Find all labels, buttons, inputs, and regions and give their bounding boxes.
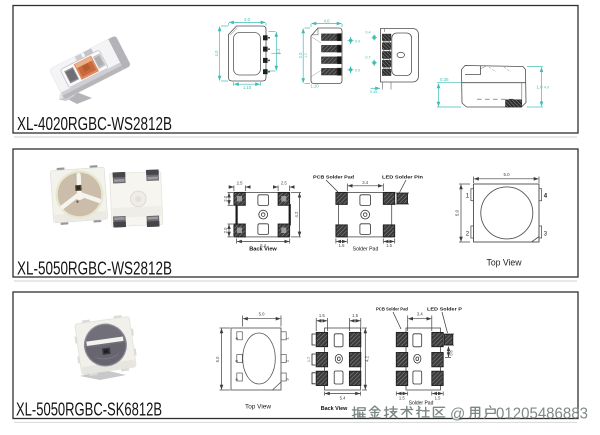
- svg-text:0.9: 0.9: [355, 39, 360, 43]
- svg-text:1.5: 1.5: [352, 313, 358, 318]
- svg-text:3.4: 3.4: [362, 180, 368, 185]
- svg-text:1.6: 1.6: [537, 85, 544, 90]
- svg-text:5.0: 5.0: [454, 209, 459, 216]
- svg-text:2.0: 2.0: [298, 52, 303, 58]
- svg-text:XL-5050RGBC-WS2812B: XL-5050RGBC-WS2812B: [17, 258, 172, 278]
- svg-text:1.5: 1.5: [319, 313, 325, 318]
- svg-text:1.5: 1.5: [339, 243, 345, 248]
- svg-text:5.0: 5.0: [215, 356, 220, 362]
- svg-text:4.0: 4.0: [324, 18, 330, 23]
- svg-text:PCB Solder Pad: PCB Solder Pad: [313, 175, 354, 181]
- svg-text:4.0: 4.0: [214, 50, 219, 56]
- svg-text:1.10: 1.10: [243, 85, 252, 90]
- svg-text:Back View: Back View: [249, 246, 277, 252]
- svg-text:0.9: 0.9: [355, 69, 360, 73]
- svg-text:2.0: 2.0: [223, 195, 228, 201]
- svg-text:4.2: 4.2: [364, 355, 369, 361]
- svg-text:3.4: 3.4: [417, 311, 423, 316]
- svg-text:Solder Pad: Solder Pad: [353, 246, 379, 252]
- svg-text:Top View: Top View: [245, 405, 272, 411]
- svg-text:4.0: 4.0: [544, 86, 549, 90]
- svg-text:3.2: 3.2: [276, 48, 281, 54]
- svg-text:4.2: 4.2: [294, 211, 299, 217]
- svg-text:1.7: 1.7: [307, 357, 311, 362]
- svg-text:LED Solder P: LED Solder P: [427, 307, 462, 312]
- svg-text:5.4: 5.4: [340, 396, 346, 401]
- svg-text:0.6: 0.6: [449, 350, 453, 355]
- svg-text:2.0: 2.0: [244, 17, 250, 22]
- svg-text:Back View: Back View: [321, 406, 348, 412]
- svg-text:5.0: 5.0: [503, 172, 510, 177]
- svg-text:0.45: 0.45: [370, 90, 377, 94]
- svg-text:XL-5050RGBC-SK6812B: XL-5050RGBC-SK6812B: [16, 400, 162, 420]
- svg-text:1.5: 1.5: [386, 243, 392, 248]
- svg-text:2.5: 2.5: [237, 181, 243, 186]
- svg-text:2.5: 2.5: [281, 181, 287, 186]
- svg-text:PCB Solder Pad: PCB Solder Pad: [376, 307, 408, 312]
- svg-text:2.0: 2.0: [223, 227, 228, 233]
- svg-text:1.5: 1.5: [399, 396, 405, 401]
- svg-text:1.10: 1.10: [311, 84, 320, 89]
- svg-text:5.0: 5.0: [259, 311, 265, 316]
- svg-text:XL-4020RGBC-WS2812B: XL-4020RGBC-WS2812B: [17, 114, 172, 134]
- svg-text:0.7: 0.7: [365, 56, 370, 60]
- svg-text:Top View: Top View: [487, 258, 523, 268]
- svg-text:0.4: 0.4: [365, 31, 370, 35]
- svg-text:Solder Pad: Solder Pad: [409, 401, 434, 407]
- svg-text:LED Solder Pin: LED Solder Pin: [382, 175, 423, 181]
- svg-text:1.0: 1.0: [304, 53, 308, 58]
- svg-text:1.5: 1.5: [435, 396, 441, 401]
- svg-text:0.35: 0.35: [440, 77, 449, 82]
